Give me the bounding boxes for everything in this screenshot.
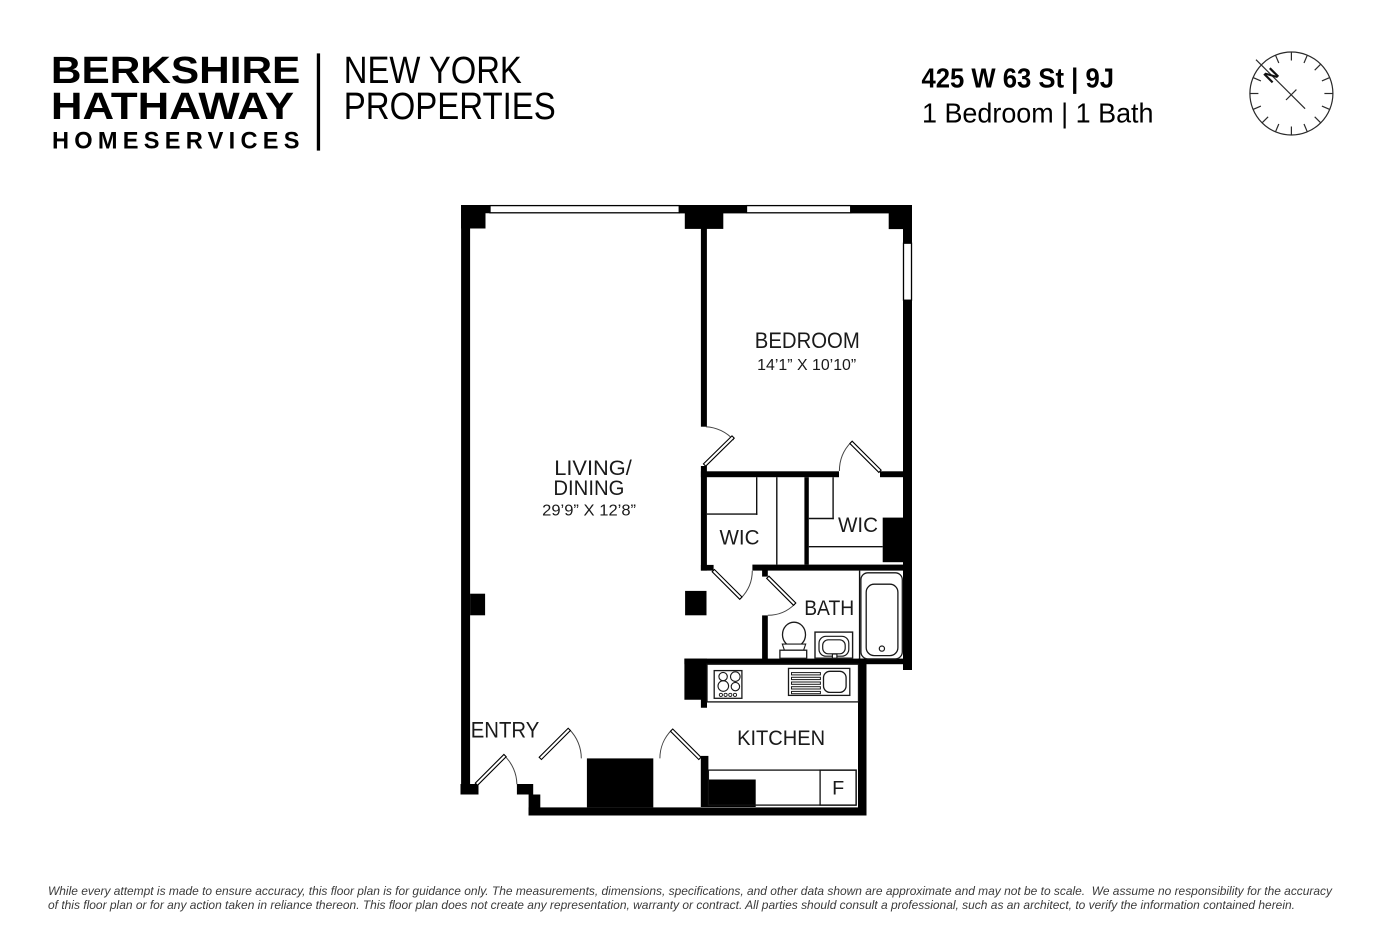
svg-text:WIC: WIC (720, 527, 760, 550)
svg-text:F: F (832, 778, 844, 800)
svg-text:14’1” X 10’10”: 14’1” X 10’10” (757, 357, 856, 374)
svg-text:1 Bedroom | 1 Bath: 1 Bedroom | 1 Bath (922, 97, 1154, 128)
svg-text:BATH: BATH (804, 597, 854, 620)
svg-text:While every attempt is made to: While every attempt is made to ensure ac… (48, 884, 1333, 898)
svg-text:HATHAWAY: HATHAWAY (51, 85, 294, 128)
svg-text:BEDROOM: BEDROOM (755, 328, 860, 353)
svg-text:29’9” X 12’8”: 29’9” X 12’8” (542, 503, 636, 520)
svg-text:KITCHEN: KITCHEN (737, 727, 825, 750)
svg-text:PROPERTIES: PROPERTIES (344, 85, 556, 128)
svg-text:HOMESERVICES: HOMESERVICES (52, 129, 300, 155)
svg-text:DINING: DINING (553, 477, 624, 500)
svg-text:WIC: WIC (838, 514, 878, 537)
svg-text:ENTRY: ENTRY (471, 718, 540, 743)
svg-text:of this floor plan or for any: of this floor plan or for any action tak… (48, 898, 1295, 912)
svg-text:425 W 63 St | 9J: 425 W 63 St | 9J (922, 63, 1115, 94)
